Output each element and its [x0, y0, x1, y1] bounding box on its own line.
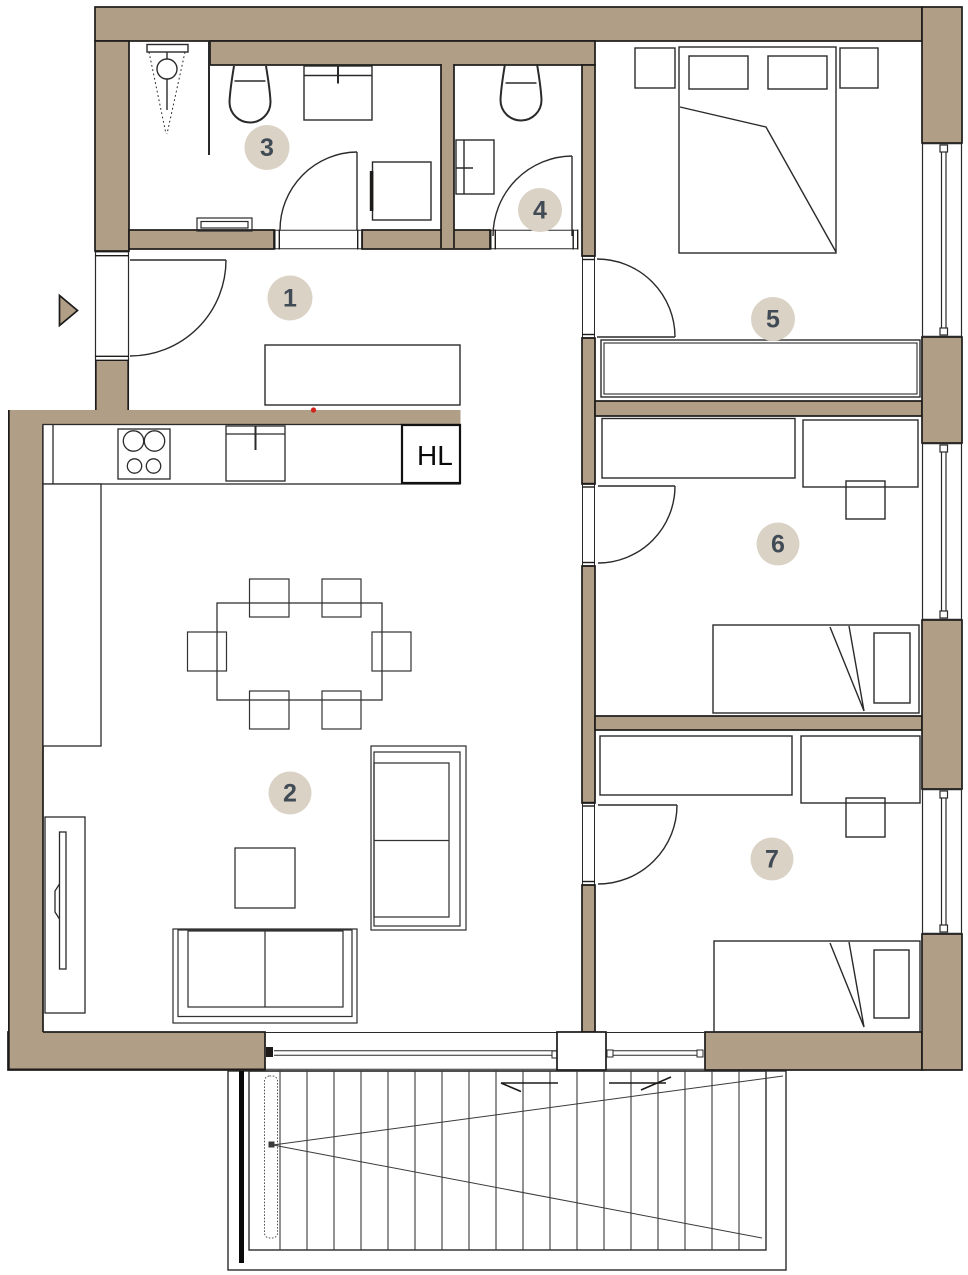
svg-text:HL: HL — [417, 440, 453, 471]
svg-text:7: 7 — [765, 846, 779, 874]
svg-text:6: 6 — [771, 531, 785, 559]
svg-text:4: 4 — [533, 197, 547, 225]
svg-text:5: 5 — [766, 306, 780, 334]
svg-text:3: 3 — [260, 134, 274, 162]
svg-text:2: 2 — [283, 780, 297, 808]
svg-text:1: 1 — [283, 285, 297, 313]
